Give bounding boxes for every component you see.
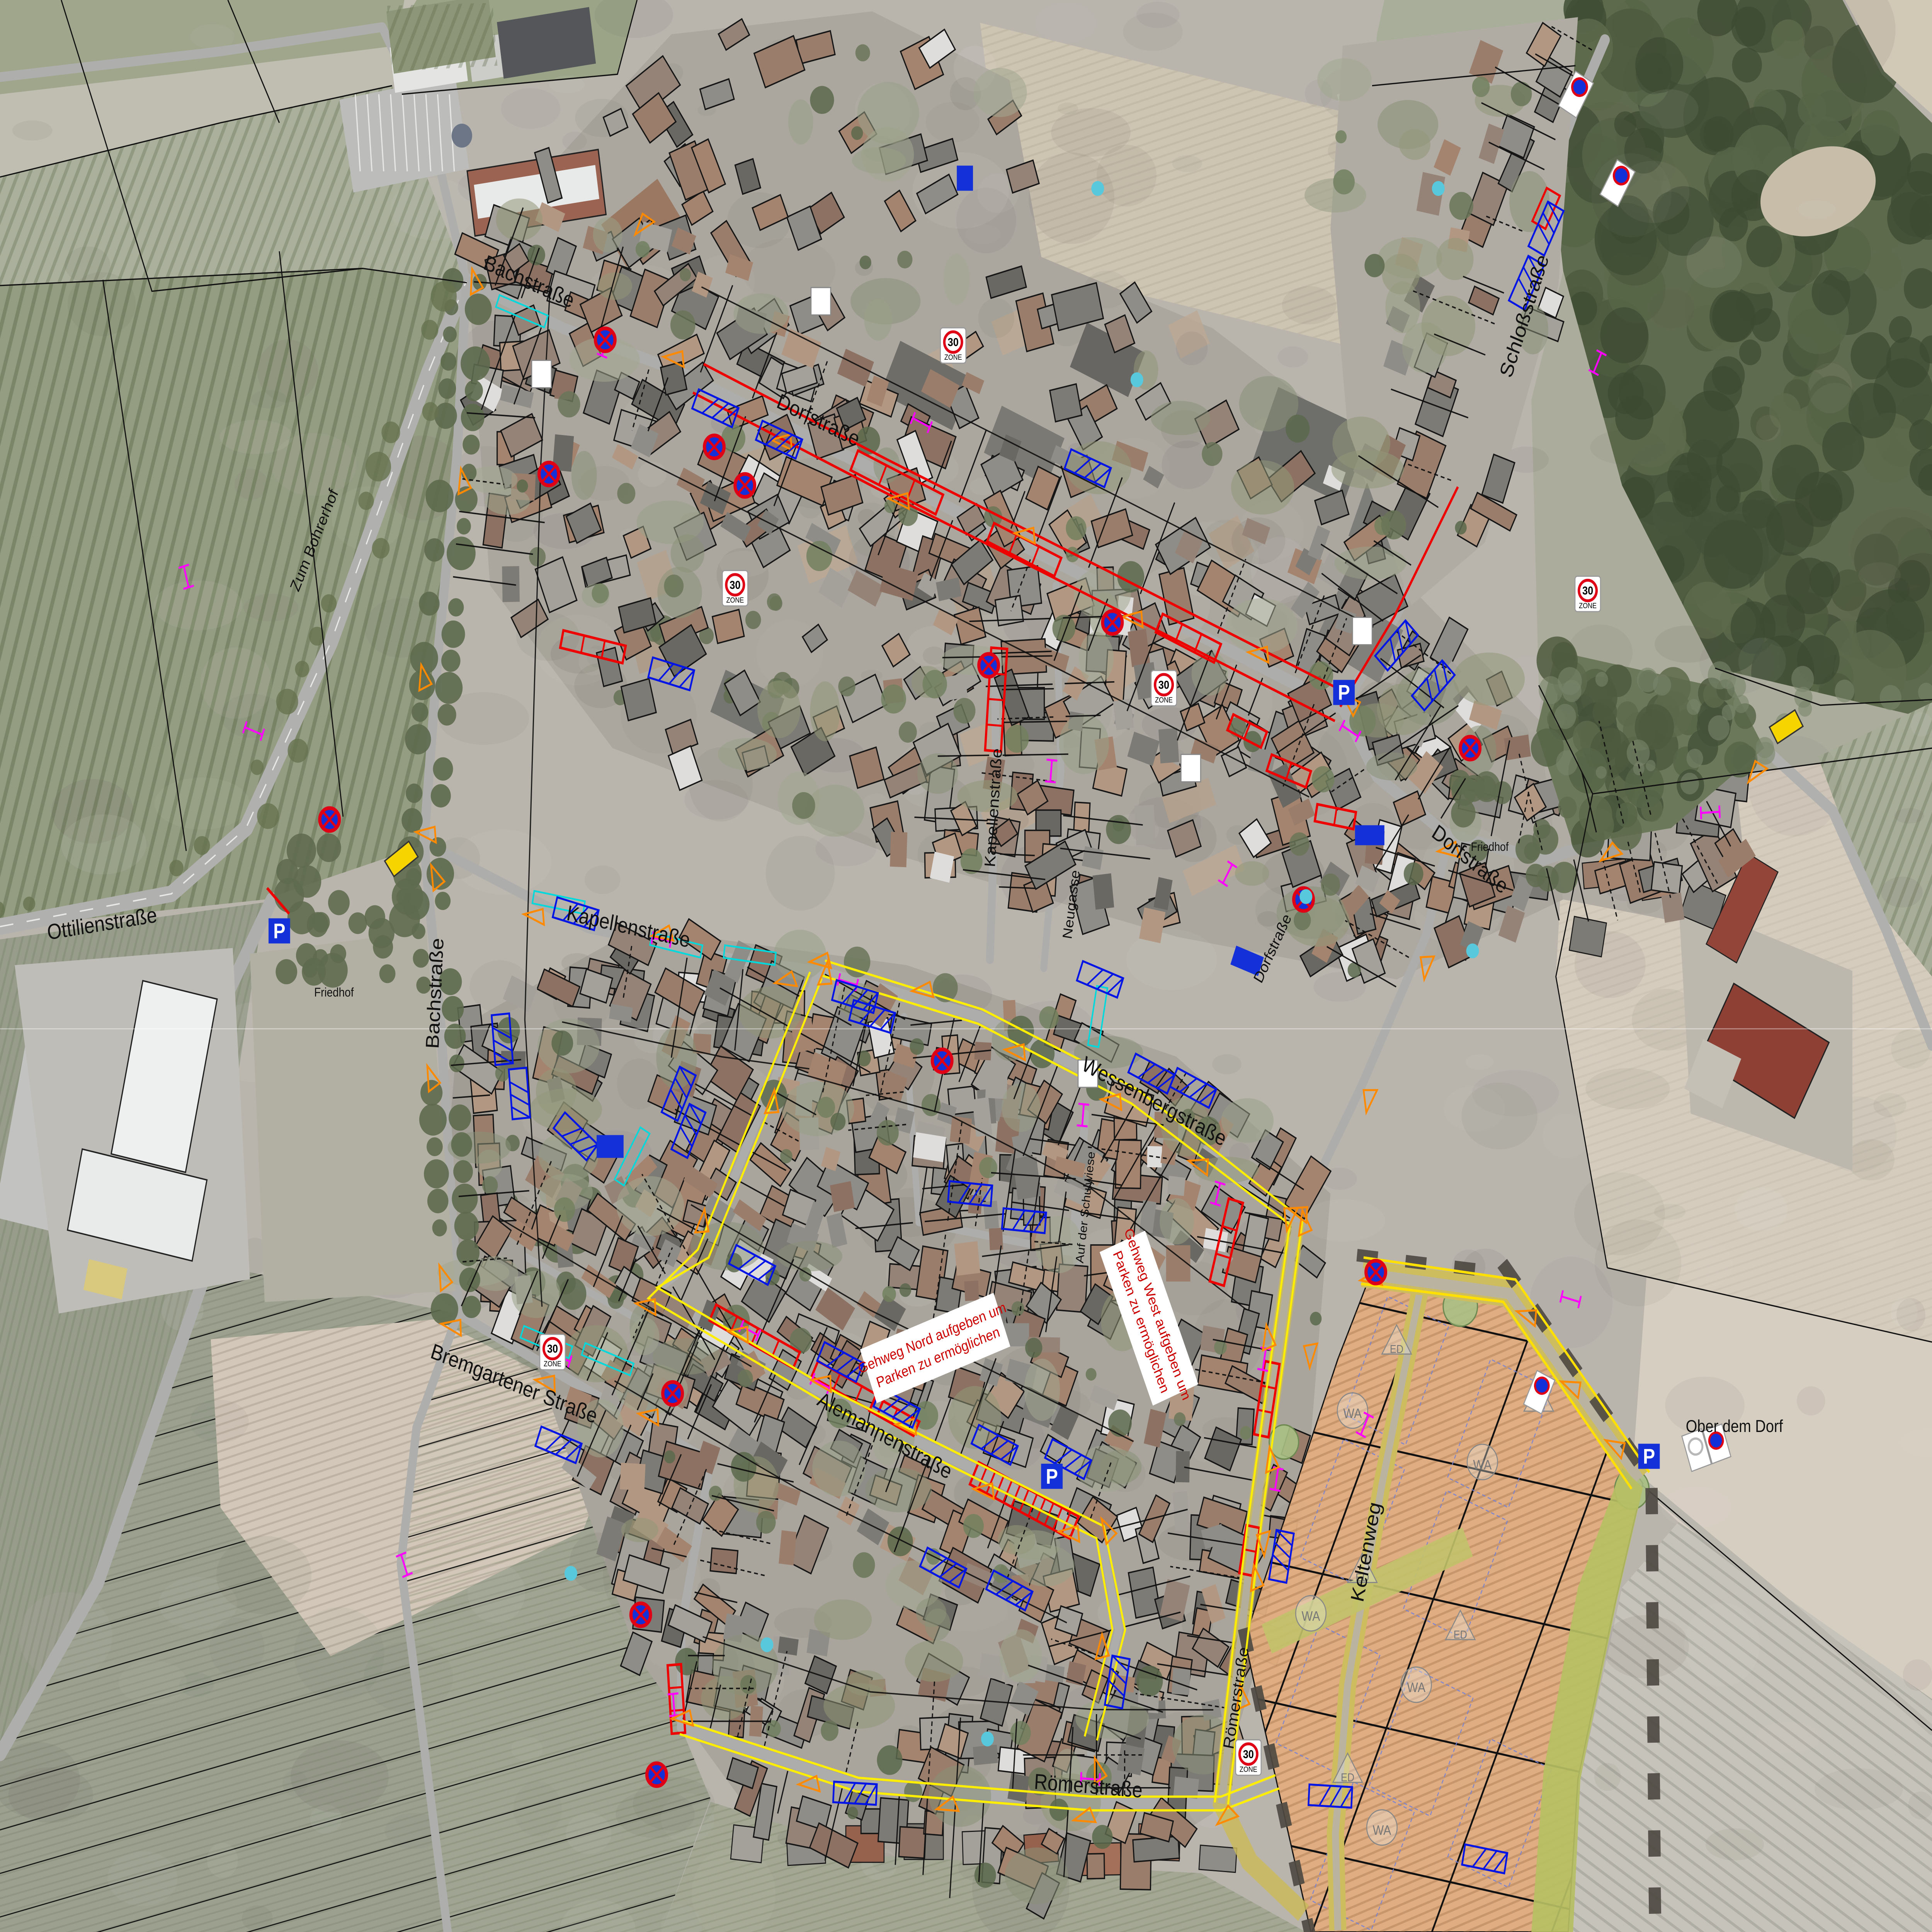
svg-text:ED: ED <box>1390 1342 1403 1355</box>
svg-text:WA: WA <box>1407 1680 1425 1696</box>
svg-text:30: 30 <box>730 578 740 591</box>
svg-text:30: 30 <box>547 1342 558 1355</box>
svg-text:ED: ED <box>1341 1771 1354 1784</box>
svg-text:30: 30 <box>948 336 959 349</box>
svg-text:WA: WA <box>1302 1609 1320 1624</box>
svg-text:30: 30 <box>1243 1748 1254 1760</box>
svg-text:P: P <box>1046 1464 1058 1488</box>
svg-text:WA: WA <box>1372 1823 1391 1838</box>
svg-text:Friedhof: Friedhof <box>314 986 354 999</box>
svg-text:30: 30 <box>1158 679 1169 691</box>
svg-text:WA: WA <box>1473 1458 1492 1473</box>
svg-text:ZONE: ZONE <box>1155 696 1173 704</box>
svg-text:30: 30 <box>1582 584 1593 597</box>
svg-text:ZONE: ZONE <box>1240 1765 1257 1773</box>
svg-text:P: P <box>1338 681 1350 704</box>
svg-text:P: P <box>1643 1445 1655 1468</box>
svg-text:ZONE: ZONE <box>944 353 962 361</box>
svg-text:ZONE: ZONE <box>726 596 744 604</box>
svg-text:P: P <box>273 919 285 943</box>
svg-text:ED: ED <box>1454 1628 1467 1641</box>
svg-text:WA: WA <box>1343 1406 1362 1422</box>
svg-text:ZONE: ZONE <box>544 1360 561 1368</box>
svg-text:Ober dem Dorf: Ober dem Dorf <box>1686 1417 1783 1435</box>
svg-text:ZONE: ZONE <box>1579 602 1597 610</box>
svg-text:Friedhof: Friedhof <box>1471 840 1509 854</box>
